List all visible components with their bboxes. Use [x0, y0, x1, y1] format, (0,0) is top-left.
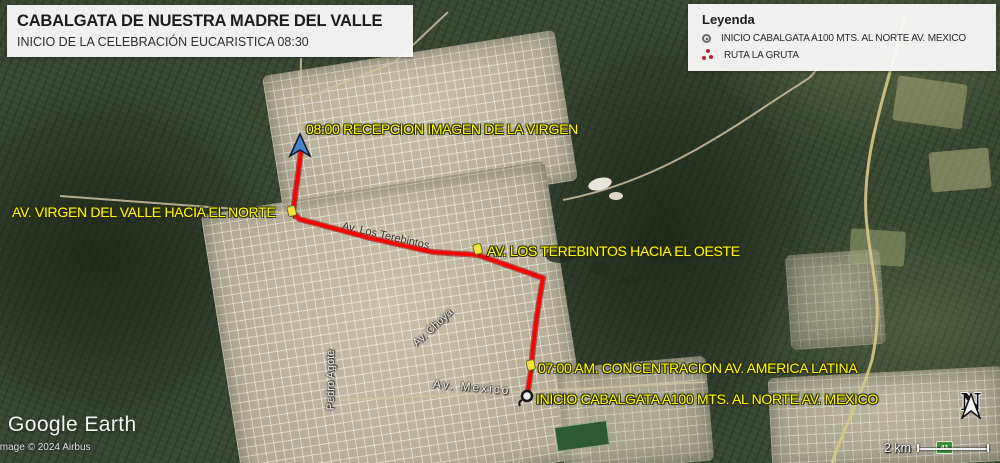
map-label-concentracion: 07:00 AM. CONCENTRACION AV. AMERICA LATI… — [538, 360, 857, 376]
page-subtitle: INICIO DE LA CELEBRACIÓN EUCARISTICA 08:… — [17, 35, 403, 49]
scale-label: 2 km — [884, 441, 911, 455]
map-label-recepcion: 08:00 RECEPCION IMAGEN DE LA VIRGEN — [306, 121, 578, 137]
scale-bar: 2 km — [884, 441, 989, 455]
map-label-terebintos: AV. LOS TEREBINTOS HACIA EL OESTE — [487, 243, 740, 259]
map-canvas[interactable]: Av. Los Terebintos Pedro Agote Av. Choya… — [0, 0, 1000, 463]
compass: N — [953, 393, 989, 413]
scale-line — [917, 444, 989, 452]
legend-item-label: RUTA LA GRUTA — [724, 50, 799, 61]
north-arrow-icon — [953, 393, 989, 419]
legend-title: Leyenda — [702, 12, 984, 27]
page-title: CABALGATA DE NUESTRA MADRE DEL VALLE — [17, 12, 403, 31]
map-attribution: Image © 2024 Airbus — [0, 442, 91, 453]
legend-item-inicio: INICIO CABALGATA A100 MTS. AL NORTE AV. … — [702, 33, 984, 44]
map-label-inicio-cabalgata: INICIO CABALGATA A100 MTS. AL NORTE AV. … — [536, 391, 878, 407]
legend-panel: Leyenda INICIO CABALGATA A100 MTS. AL NO… — [688, 4, 996, 71]
legend-item-ruta: RUTA LA GRUTA — [702, 49, 984, 61]
route-polyline-halo — [293, 151, 543, 391]
legend-item-label: INICIO CABALGATA A100 MTS. AL NORTE AV. … — [721, 33, 966, 44]
map-label-virgen-del-valle: AV. VIRGEN DEL VALLE HACIA EL NORTE — [12, 204, 275, 220]
google-earth-logo: Google Earth — [8, 413, 137, 437]
cluster-icon — [702, 49, 714, 61]
route-start-marker-icon[interactable] — [519, 391, 532, 406]
title-panel: CABALGATA DE NUESTRA MADRE DEL VALLE INI… — [7, 5, 413, 57]
target-icon — [702, 34, 711, 43]
route-polyline — [293, 151, 543, 391]
